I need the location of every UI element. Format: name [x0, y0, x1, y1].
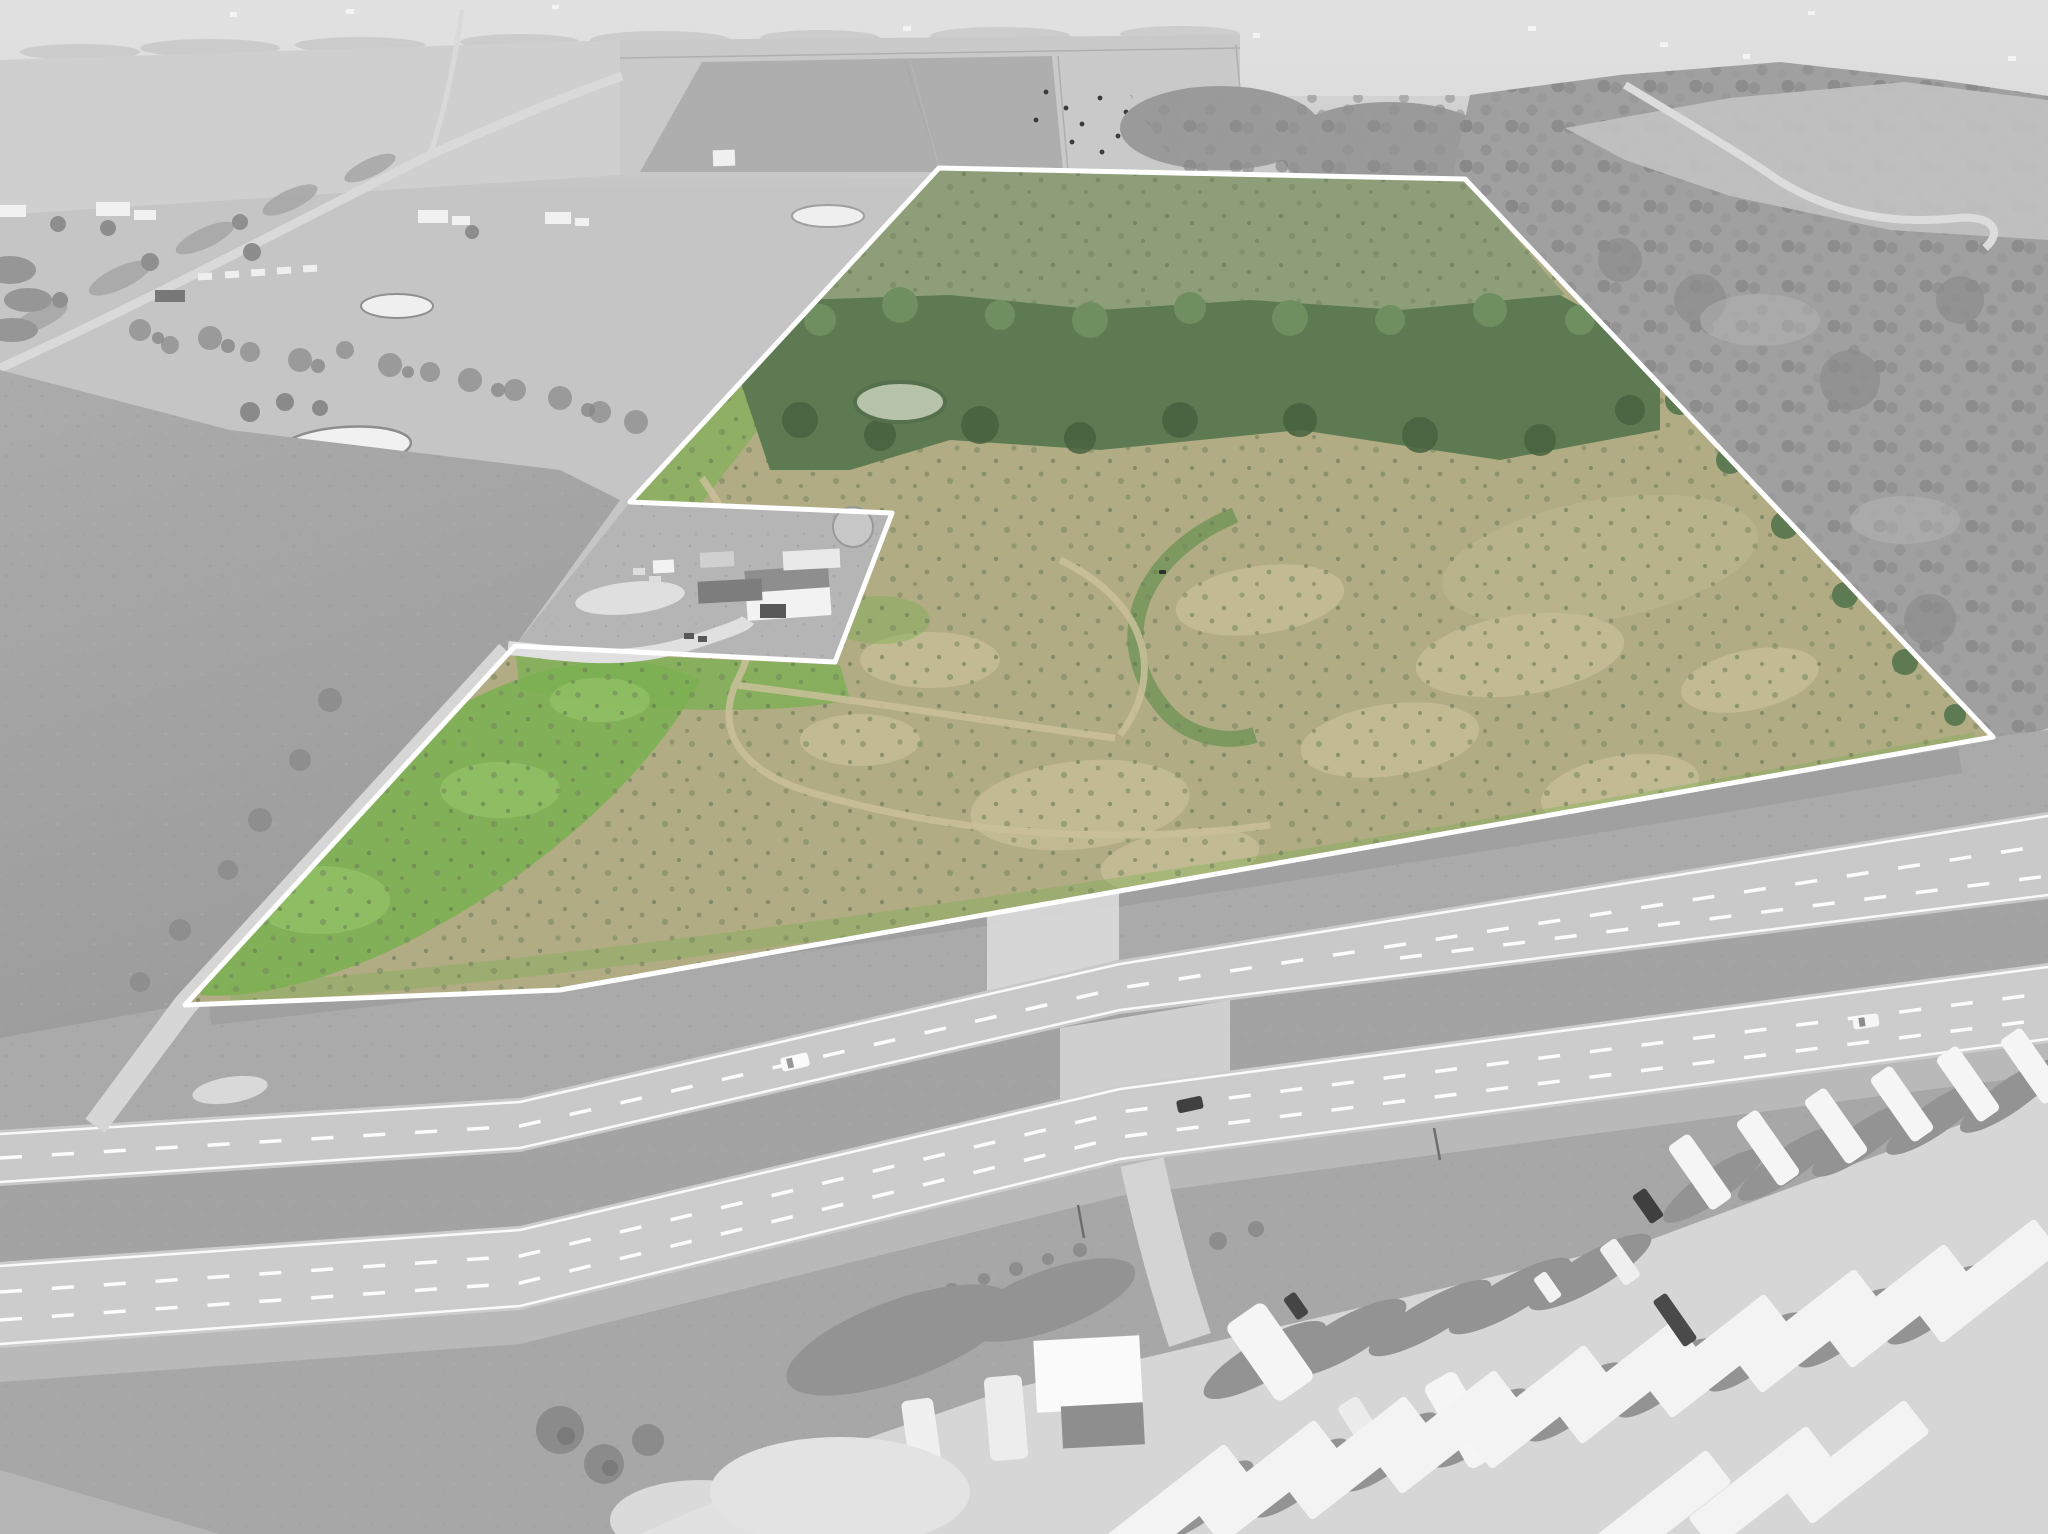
aerial-photo-canvas	[0, 0, 2048, 1534]
small-barn	[713, 150, 736, 167]
utility-trailer	[653, 559, 675, 573]
metal-shed	[700, 551, 735, 568]
aerial-photo	[0, 0, 2048, 1534]
long-shed	[697, 578, 762, 603]
tilled-field	[640, 56, 1063, 172]
stock-pond-oval	[792, 205, 864, 227]
pond-upper	[361, 294, 433, 318]
barn	[783, 548, 841, 570]
rv-trailer	[983, 1375, 1028, 1462]
open-shelter	[155, 290, 185, 302]
parcel-pond	[855, 382, 945, 422]
